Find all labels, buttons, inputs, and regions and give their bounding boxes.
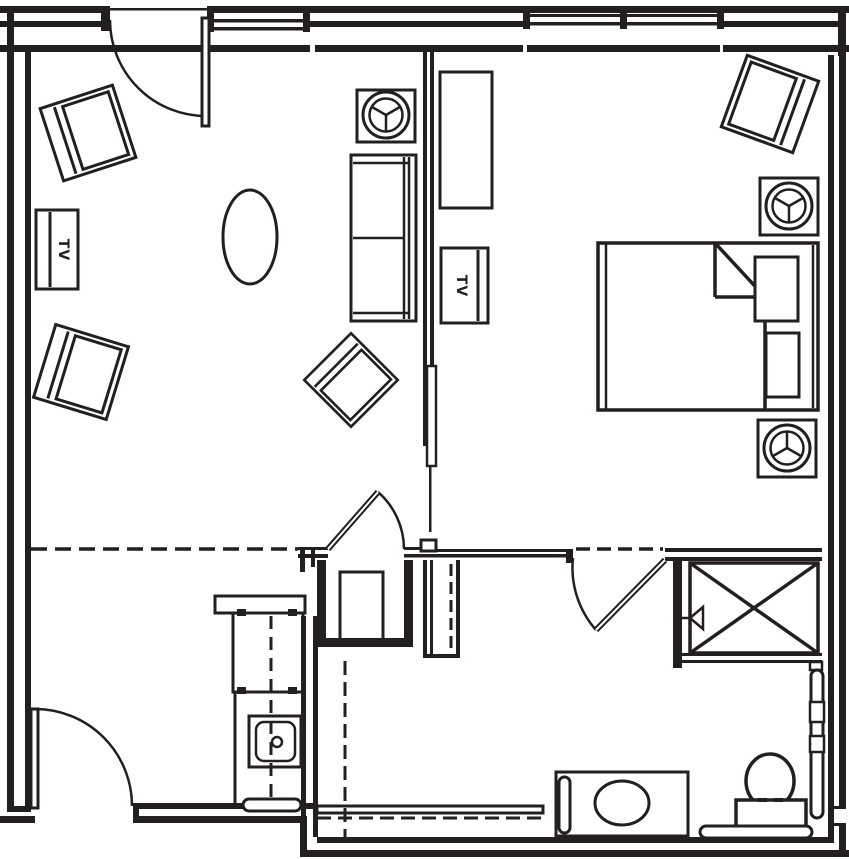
pocket-door-panel xyxy=(427,366,436,466)
floor-plan: TV xyxy=(0,0,849,859)
closet-arrow-icon xyxy=(690,607,703,629)
grab-bar-behind-toilet xyxy=(700,826,812,838)
toilet xyxy=(700,754,812,838)
nightstand-lamp-bottom xyxy=(758,420,816,477)
tv-cabinet-bedroom: TV xyxy=(441,248,488,323)
sink-drain xyxy=(272,737,282,747)
wall-break xyxy=(835,809,849,823)
sink-basin xyxy=(256,722,295,761)
dresser xyxy=(440,72,492,208)
tv-label: TV xyxy=(453,275,469,297)
chase-wall-column xyxy=(423,560,460,658)
closet-swing-door xyxy=(328,492,404,549)
door-swing-arc xyxy=(35,709,132,806)
top-wall-and-windows xyxy=(0,6,849,56)
door-leaf xyxy=(31,709,38,808)
entry-door-top-wall xyxy=(110,18,209,126)
sofa xyxy=(351,155,416,321)
armchair-left xyxy=(34,325,129,420)
utility-closet xyxy=(317,560,413,647)
grab-bar-bracket xyxy=(810,736,824,752)
door-leaf xyxy=(202,18,209,126)
left-wall xyxy=(0,13,35,823)
grab-bar-bracket xyxy=(810,702,824,722)
top-left-door-post xyxy=(101,13,110,31)
shower-ledge xyxy=(317,806,543,813)
pillow xyxy=(755,257,798,321)
floor-plan-drawing: TV xyxy=(0,0,849,859)
door-swing-arc xyxy=(378,492,404,549)
armchair-bedroom-corner xyxy=(721,55,818,152)
window-b-post xyxy=(717,12,724,29)
shower-area xyxy=(317,661,543,843)
linen-closet xyxy=(673,560,822,668)
tv-label: TV xyxy=(55,239,71,261)
nightstand-lamp-top xyxy=(760,178,818,235)
partition-wall xyxy=(423,52,436,532)
sink-cabinet xyxy=(235,692,303,805)
window-b-post xyxy=(523,12,530,29)
entry-door-bottom-left xyxy=(31,709,132,808)
window-a-post xyxy=(303,13,310,32)
right-wall xyxy=(828,13,849,850)
bathroom-swing-door xyxy=(572,558,665,630)
door-swing-arc xyxy=(572,558,596,630)
vanity xyxy=(556,772,688,836)
armchair-center-diamond xyxy=(304,333,398,427)
utility-fixture xyxy=(340,572,383,640)
door-swing-arc xyxy=(110,20,206,116)
tv-cabinet-left: TV xyxy=(36,210,78,289)
vanity-sink xyxy=(595,781,649,825)
bed xyxy=(598,243,818,410)
towel-bar xyxy=(243,799,301,811)
grab-bar-right-wall xyxy=(810,662,824,818)
side-table-with-lamp xyxy=(357,90,415,142)
wall-pier-bump xyxy=(421,540,436,551)
middle-wall xyxy=(298,540,822,572)
base-cabinet xyxy=(233,613,303,692)
kitchenette xyxy=(215,596,305,811)
pillow xyxy=(766,333,799,397)
oval-coffee-table xyxy=(223,190,277,284)
armchair-top-left xyxy=(40,85,136,181)
grab-bar-vanity xyxy=(559,777,570,833)
